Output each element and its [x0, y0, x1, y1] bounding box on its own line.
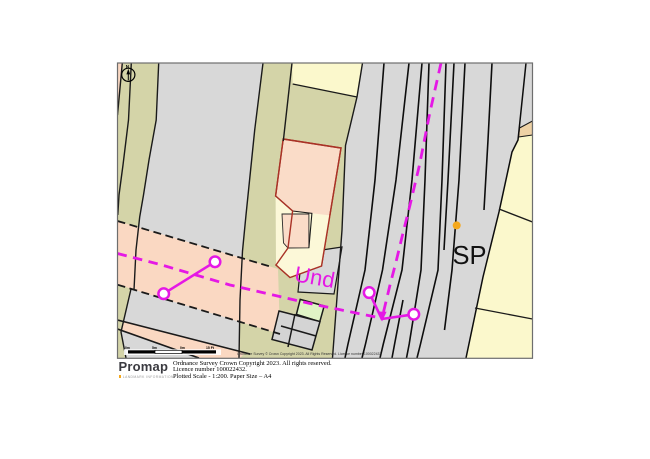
svg-text:5m: 5m	[152, 346, 157, 350]
svg-text:0m: 0m	[180, 346, 185, 350]
svg-text:Ordnance Survey © Crown Copyri: Ordnance Survey © Crown Copyright 2023. …	[237, 352, 381, 356]
svg-text:0m: 0m	[125, 346, 130, 350]
svg-text:15 Ft: 15 Ft	[206, 346, 215, 350]
svg-text:SP: SP	[453, 242, 487, 270]
